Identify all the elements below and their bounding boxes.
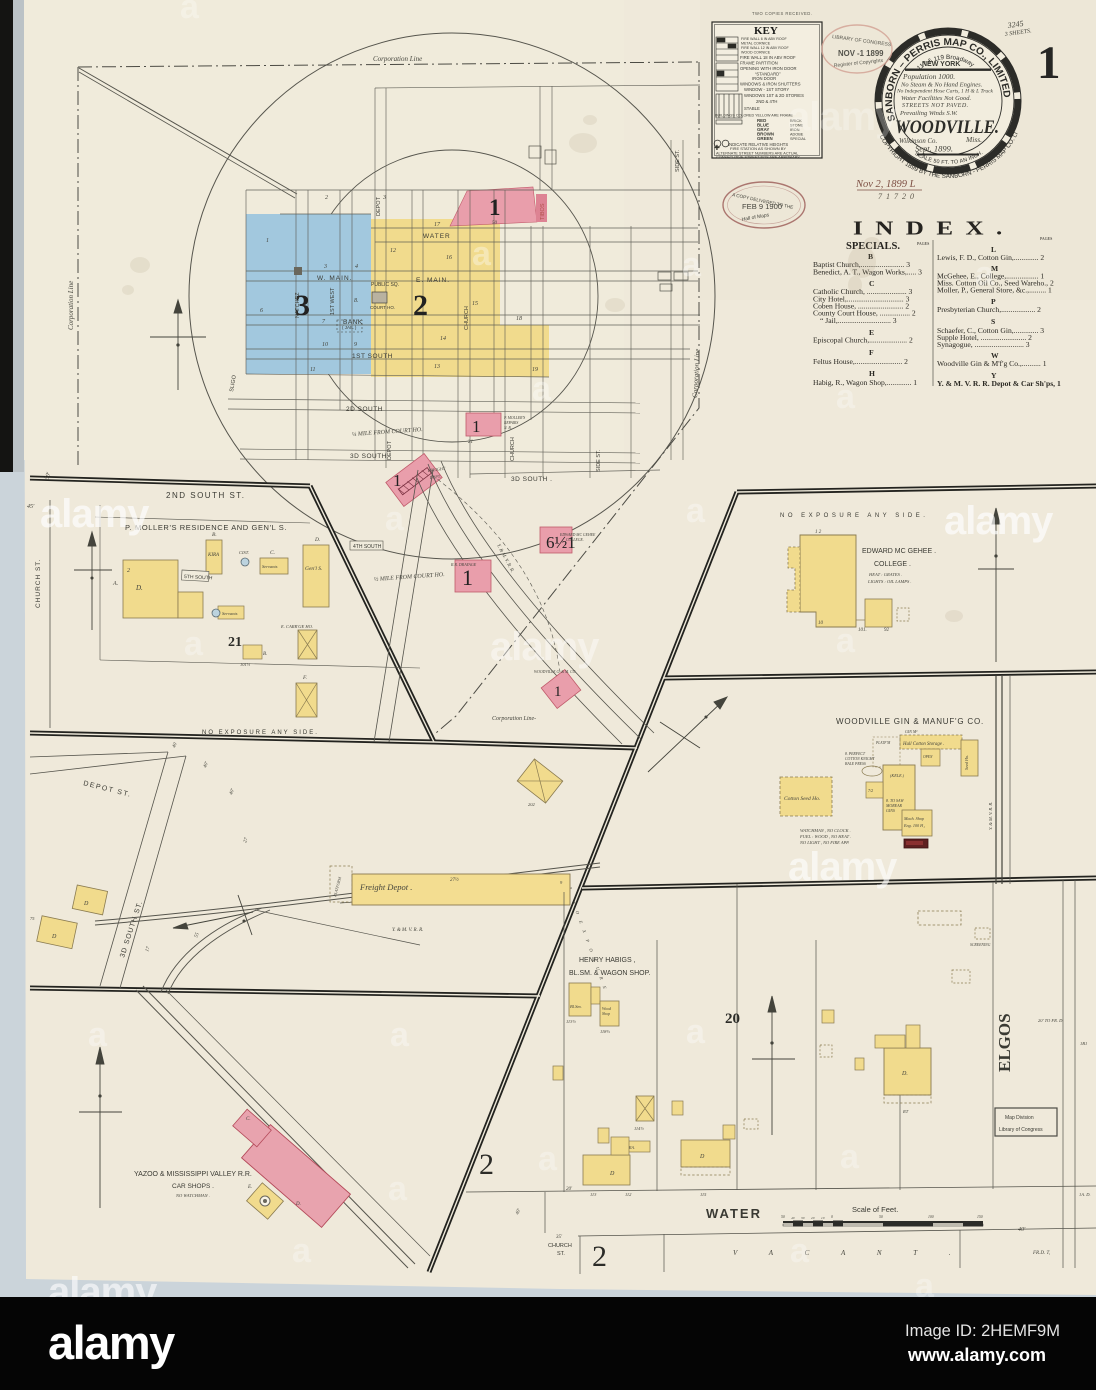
svg-text:50: 50	[492, 221, 498, 226]
svg-text:Shop: Shop	[602, 1011, 610, 1016]
svg-text:8. PERFECT: 8. PERFECT	[845, 752, 866, 756]
svg-text:INDEX.: INDEX.	[853, 217, 1015, 239]
svg-text:1: 1	[462, 565, 473, 590]
svg-text:10: 10	[818, 621, 824, 626]
svg-text:4: 4	[355, 263, 358, 270]
svg-text:ELGOS: ELGOS	[995, 1013, 1014, 1072]
svg-text:Y. & M. V. R. R. Depot & Car S: Y. & M. V. R. R. Depot & Car Sh'ps, 1	[937, 379, 1061, 388]
svg-text:101½: 101½	[240, 662, 251, 667]
svg-text:18: 18	[516, 316, 522, 322]
svg-text:3D SOUTH .: 3D SOUTH .	[511, 476, 552, 483]
svg-text:D: D	[699, 1154, 705, 1160]
svg-text:E. MAIN.: E. MAIN.	[416, 277, 450, 284]
svg-text:WINDOW - 1ST STORY: WINDOW - 1ST STORY	[744, 87, 789, 92]
svg-text:TWO COPIES RECEIVED.: TWO COPIES RECEIVED.	[752, 11, 813, 16]
svg-text:2: 2	[325, 195, 328, 201]
svg-text:COTTON KNIGHT: COTTON KNIGHT	[845, 757, 875, 761]
svg-text:Map Division: Map Division	[1005, 1115, 1034, 1121]
svg-text:F.: F.	[302, 675, 307, 681]
svg-text:BALE PRESS: BALE PRESS	[845, 762, 866, 766]
svg-text:3: 3	[323, 264, 327, 270]
svg-text:2: 2	[413, 289, 428, 322]
svg-text:CHURCH: CHURCH	[548, 1243, 572, 1249]
svg-text:CHURCH: CHURCH	[464, 306, 470, 330]
svg-text:D.: D.	[314, 537, 320, 543]
svg-text:www.alamy.com: www.alamy.com	[907, 1345, 1046, 1365]
svg-text:1: 1	[393, 471, 402, 490]
svg-text:“ Jail,...................: “ Jail,............................ 3	[820, 316, 897, 325]
svg-text:WINDOWS & IRON SHUTTERS: WINDOWS & IRON SHUTTERS	[740, 82, 801, 87]
svg-text:FIRE STATION AS SHOWN BY: FIRE STATION AS SHOWN BY	[730, 146, 786, 151]
svg-text:10: 10	[821, 1216, 825, 1220]
svg-text:WOOD CORNICE: WOOD CORNICE	[741, 51, 771, 55]
svg-text:27½: 27½	[450, 878, 459, 883]
svg-text:9: 9	[354, 342, 357, 348]
svg-text:C.: C.	[246, 1117, 251, 1122]
svg-text:V A C A N T .: V A C A N T .	[733, 1249, 966, 1257]
svg-text:2ND SOUTH ST.: 2ND SOUTH ST.	[166, 491, 246, 500]
svg-text:SCREENING: SCREENING	[970, 943, 991, 947]
svg-text:PAGES: PAGES	[1040, 236, 1052, 241]
svg-text:Servants: Servants	[222, 611, 238, 616]
svg-text:P. MOLLER'S: P. MOLLER'S	[503, 416, 525, 420]
svg-text:FIRE WALL 6 IN ABV ROOF: FIRE WALL 6 IN ABV ROOF	[741, 37, 787, 41]
svg-text:Nov 2, 1899 L: Nov 2, 1899 L	[855, 179, 916, 190]
svg-text:BUILDINGS COLORED YELLOW ARE F: BUILDINGS COLORED YELLOW ARE FRAME	[715, 114, 793, 118]
svg-text:B.: B.	[212, 532, 217, 538]
svg-text:1ST WEST: 1ST WEST	[330, 287, 336, 315]
svg-text:6: 6	[260, 308, 263, 314]
svg-text:F: F	[869, 348, 874, 357]
svg-text:D: D	[51, 934, 57, 940]
svg-text:2D SOUTH: 2D SOUTH	[346, 406, 383, 413]
svg-text:Library of Congress: Library of Congress	[999, 1127, 1043, 1133]
svg-text:A.: A.	[112, 581, 118, 587]
svg-text:2: 2	[592, 1240, 607, 1273]
svg-text:Mach. Shop: Mach. Shop	[903, 816, 924, 821]
svg-text:1: 1	[472, 417, 481, 436]
svg-text:Population 1000.: Population 1000.	[902, 72, 955, 81]
svg-text:75: 75	[30, 916, 35, 921]
svg-text:HEAT : GRATES .: HEAT : GRATES .	[868, 572, 902, 577]
svg-text:alamy: alamy	[48, 1316, 175, 1369]
svg-text:Servants: Servants	[262, 564, 278, 569]
svg-text:Feltus House,.................: Feltus House,......................... 2	[813, 357, 908, 366]
svg-text:KEY: KEY	[754, 25, 778, 37]
svg-text:1A. D.: 1A. D.	[1079, 1192, 1091, 1197]
svg-text:Presbyterian Church,..........: Presbyterian Church,.................. 2	[937, 305, 1041, 314]
svg-text:STREETS NOT PAVED.: STREETS NOT PAVED.	[902, 103, 969, 109]
svg-text:NO WATCHMAN .: NO WATCHMAN .	[175, 1193, 210, 1198]
svg-text:NATCHEZ: NATCHEZ	[295, 292, 301, 318]
svg-text:100: 100	[928, 1215, 934, 1219]
svg-text:21: 21	[468, 440, 473, 445]
svg-text:H: H	[869, 369, 875, 378]
svg-text:SIDE ST.: SIDE ST.	[596, 449, 602, 472]
svg-text:1ST SOUTH: 1ST SOUTH	[352, 353, 393, 360]
svg-text:S: S	[991, 317, 995, 326]
svg-text:FRAME PARTITION: FRAME PARTITION	[740, 61, 778, 66]
svg-text:W. MAIN.: W. MAIN.	[317, 275, 352, 282]
svg-text:8.: 8.	[354, 298, 359, 304]
svg-text:FEB 9 1900: FEB 9 1900	[742, 202, 782, 211]
svg-text:No Steam & No Hand Engines.: No Steam & No Hand Engines.	[900, 82, 983, 89]
svg-text:40: 40	[791, 1216, 795, 1220]
svg-text:WATER: WATER	[423, 233, 451, 240]
svg-text:92: 92	[884, 628, 890, 633]
svg-text:E.: E.	[247, 1185, 252, 1190]
svg-text:Eng. 100 H₁: Eng. 100 H₁	[903, 823, 925, 828]
svg-text:D: D	[83, 901, 89, 907]
svg-text:Prevailing Winds S.W.: Prevailing Winds S.W.	[899, 110, 958, 117]
svg-text:1 2: 1 2	[815, 530, 822, 535]
svg-text:Corporation Line: Corporation Line	[67, 281, 75, 330]
svg-text:Freight Depot .: Freight Depot .	[359, 882, 412, 892]
svg-text:PAGES: PAGES	[917, 241, 929, 246]
svg-text:TIBOS: TIBOS	[540, 203, 546, 220]
svg-text:Corporation Line: Corporation Line	[373, 55, 422, 63]
svg-text:OPEN: OPEN	[923, 755, 933, 759]
svg-text:GIN M¹: GIN M¹	[905, 729, 918, 734]
svg-text:1: 1	[554, 684, 562, 700]
svg-text:BL.SM. & WAGON SHOP.: BL.SM. & WAGON SHOP.	[569, 970, 650, 977]
svg-text:Corporation Line-: Corporation Line-	[492, 716, 536, 722]
svg-text:1B1: 1B1	[1080, 1041, 1087, 1046]
svg-text:30: 30	[801, 1216, 805, 1220]
svg-text:7 1 7 2 0: 7 1 7 2 0	[878, 192, 915, 201]
svg-text:Woodville Gin & M'f'g Co.,....: Woodville Gin & M'f'g Co.,.......... 1	[937, 359, 1047, 368]
svg-text:P. MOLLER'S RESIDENCE AND GEN': P. MOLLER'S RESIDENCE AND GEN'L S.	[125, 523, 287, 532]
svg-text:114½: 114½	[634, 1126, 644, 1131]
svg-text:R.R. DRAYAGE: R.R. DRAYAGE	[450, 562, 477, 567]
svg-text:NO EXPOSURE ANY SIDE.: NO EXPOSURE ANY SIDE.	[202, 730, 319, 736]
svg-text:Episcopal Church,.............: Episcopal Church,.................... 2	[813, 336, 913, 345]
svg-text:HENRY HABIGS ,: HENRY HABIGS ,	[579, 957, 636, 964]
svg-text:202: 202	[528, 802, 536, 807]
svg-text:COLLEGE .: COLLEGE .	[874, 561, 911, 568]
svg-text:Image ID: 2HEMF9M: Image ID: 2HEMF9M	[905, 1322, 1060, 1340]
svg-text:CHURCH ST.: CHURCH ST.	[35, 559, 42, 608]
svg-text:113: 113	[590, 1192, 597, 1197]
svg-text:WATER: WATER	[706, 1206, 762, 1221]
svg-text:Habig, R., Wagon Shop,........: Habig, R., Wagon Shop,............. 1	[813, 378, 917, 387]
svg-text:1: 1	[266, 238, 269, 244]
svg-text:D.: D.	[295, 1202, 301, 1207]
svg-text:IRON DOOR: IRON DOOR	[752, 76, 776, 81]
svg-text:CAR SHOPS .: CAR SHOPS .	[172, 1183, 214, 1190]
svg-text:Y. & M. V. R. R.: Y. & M. V. R. R.	[988, 802, 993, 830]
svg-text:Gen'l S.: Gen'l S.	[305, 566, 322, 572]
svg-text:B.: B.	[263, 652, 267, 657]
svg-text:113½: 113½	[566, 1019, 576, 1024]
svg-text:150: 150	[977, 1215, 983, 1219]
svg-text:12: 12	[390, 248, 396, 254]
svg-text:EDWARD MC GEHEE: EDWARD MC GEHEE	[559, 533, 596, 537]
svg-text:21: 21	[228, 635, 242, 650]
svg-text:14: 14	[440, 335, 446, 342]
svg-text:No Independent Hose Carts, 1 H: No Independent Hose Carts, 1 H & L Truck	[896, 89, 994, 95]
svg-text:REPAIRS: REPAIRS	[503, 421, 518, 425]
svg-text:20' TO FR. D.: 20' TO FR. D.	[1038, 1018, 1064, 1023]
svg-text:35': 35'	[556, 1235, 563, 1240]
svg-text:COURT HO.: COURT HO.	[370, 305, 395, 310]
svg-text:RT: RT	[902, 1109, 909, 1114]
svg-text:WOODVILLE G. & M. CO.: WOODVILLE G. & M. CO.	[534, 670, 576, 674]
svg-text:NOV -1 1899: NOV -1 1899	[838, 49, 884, 58]
svg-text:D: D	[609, 1171, 615, 1177]
svg-text:16: 16	[446, 255, 452, 261]
svg-text:45': 45'	[27, 503, 35, 510]
svg-text:118⅓: 118⅓	[600, 1029, 610, 1034]
svg-text:WOODVILLE.: WOODVILLE.	[895, 117, 999, 138]
svg-text:Scale of Feet.: Scale of Feet.	[852, 1205, 898, 1214]
svg-text:CONSECUTIVE STREET NOS ARE ARB: CONSECUTIVE STREET NOS ARE ARBITRARY	[716, 156, 800, 160]
svg-text:20: 20	[725, 1011, 740, 1027]
svg-text:Miss.: Miss.	[965, 135, 982, 144]
svg-text:STABLE: STABLE	[744, 106, 760, 111]
svg-text:Synagogue, ...................: Synagogue, .......................... 3	[937, 340, 1030, 349]
svg-text:YAZOO & MISSISSIPPI VALLEY R.R: YAZOO & MISSISSIPPI VALLEY R.R.	[134, 1171, 252, 1178]
svg-text:COLLEGE.: COLLEGE.	[566, 538, 584, 542]
svg-text:OPENING WITH IRON DOOR: OPENING WITH IRON DOOR	[740, 66, 797, 71]
svg-text:FIRE WALL 18 IN ABV ROOF: FIRE WALL 18 IN ABV ROOF	[740, 55, 796, 60]
svg-text:N. B.: N. B.	[503, 426, 512, 430]
svg-text:4TH SOUTH: 4TH SOUTH	[353, 544, 382, 550]
svg-text:C.: C.	[270, 550, 275, 556]
svg-text:Sept. 1899.: Sept. 1899.	[915, 144, 953, 154]
svg-text:Y. & M. V. R. R.: Y. & M. V. R. R.	[392, 928, 423, 933]
svg-text:Bl.Sm.: Bl.Sm.	[570, 1004, 582, 1009]
svg-text:1: 1	[489, 195, 501, 220]
svg-text:112: 112	[625, 1192, 632, 1197]
svg-text:7/2: 7/2	[868, 788, 873, 793]
svg-text:PUBLIC SQ.: PUBLIC SQ.	[371, 282, 399, 288]
svg-text:50: 50	[879, 1215, 883, 1219]
svg-text:CHURCH: CHURCH	[510, 437, 516, 461]
svg-text:FR.D. T,: FR.D. T,	[1032, 1251, 1050, 1256]
svg-text:FIRE WALL 12 IN ABV ROOF: FIRE WALL 12 IN ABV ROOF	[741, 46, 789, 50]
svg-text:20: 20	[811, 1216, 815, 1220]
svg-text:NO EXPOSURE ANY SIDE.: NO EXPOSURE ANY SIDE.	[780, 513, 928, 519]
svg-text:GINS: GINS	[886, 808, 895, 813]
svg-text:115: 115	[700, 1192, 707, 1197]
svg-text:GREEN: GREEN	[757, 136, 773, 141]
svg-text:NEW YORK: NEW YORK	[922, 61, 960, 68]
svg-text:20': 20'	[566, 1187, 573, 1192]
svg-text:E. CARR'GE HO.: E. CARR'GE HO.	[280, 624, 313, 629]
svg-text:Cotton Seed Ho.: Cotton Seed Ho.	[784, 796, 820, 802]
svg-text:2ND & 4TH: 2ND & 4TH	[756, 99, 777, 104]
svg-text:CIST.: CIST.	[239, 550, 249, 555]
svg-text:3: 3	[382, 195, 386, 201]
svg-text:Seed Ho.: Seed Ho.	[964, 755, 969, 770]
svg-text:2: 2	[127, 568, 130, 574]
svg-text:PLATF'M: PLATF'M	[875, 741, 891, 745]
svg-text:LIGHTS : OIL LAMPS .: LIGHTS : OIL LAMPS .	[867, 579, 912, 584]
svg-text:KIRA: KIRA	[207, 553, 220, 558]
svg-text:EDWARD MC GEHEE .: EDWARD MC GEHEE .	[862, 548, 936, 555]
svg-text:11: 11	[310, 367, 316, 373]
svg-text:17: 17	[434, 222, 441, 228]
svg-text:D.: D.	[135, 584, 143, 592]
svg-text:50: 50	[781, 1215, 785, 1219]
svg-text:BANK: BANK	[343, 319, 363, 326]
svg-text:Moller, P., General Store, &c.: Moller, P., General Store, &c.,.........…	[937, 286, 1052, 295]
svg-text:2: 2	[479, 1148, 494, 1181]
svg-text:15: 15	[472, 301, 478, 307]
svg-text:DEPOT: DEPOT	[376, 196, 382, 216]
svg-text:101.: 101.	[858, 628, 867, 633]
svg-text:ST.: ST.	[557, 1251, 565, 1257]
svg-text:SIDE ST.: SIDE ST.	[675, 149, 681, 172]
svg-text:DEPOT: DEPOT	[387, 440, 393, 460]
svg-text:WOODVILLE GIN & MANUF'G CO.: WOODVILLE GIN & MANUF'G CO.	[836, 717, 984, 726]
svg-text:D.: D.	[901, 1071, 908, 1077]
svg-text:10: 10	[322, 342, 328, 348]
svg-text:0: 0	[831, 1215, 833, 1219]
svg-text:(KELE.): (KELE.)	[890, 773, 905, 778]
svg-text:13: 13	[434, 364, 440, 370]
svg-text:3D SOUTH: 3D SOUTH	[350, 453, 387, 460]
svg-text:Water Facilities Not Good.: Water Facilities Not Good.	[901, 95, 972, 102]
svg-text:Hull Cotton Storage .: Hull Cotton Storage .	[902, 742, 944, 747]
svg-text:METAL CORNICE: METAL CORNICE	[741, 42, 771, 46]
svg-text:1: 1	[1037, 37, 1061, 89]
